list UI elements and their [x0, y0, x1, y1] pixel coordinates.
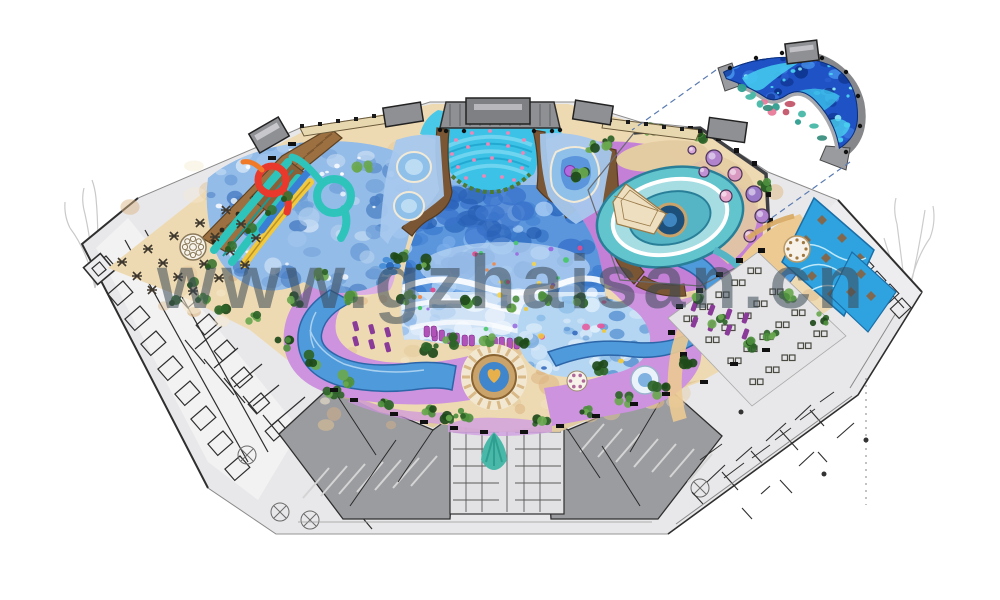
svg-text:www.gzhaisan.cn: www.gzhaisan.cn — [156, 240, 869, 325]
